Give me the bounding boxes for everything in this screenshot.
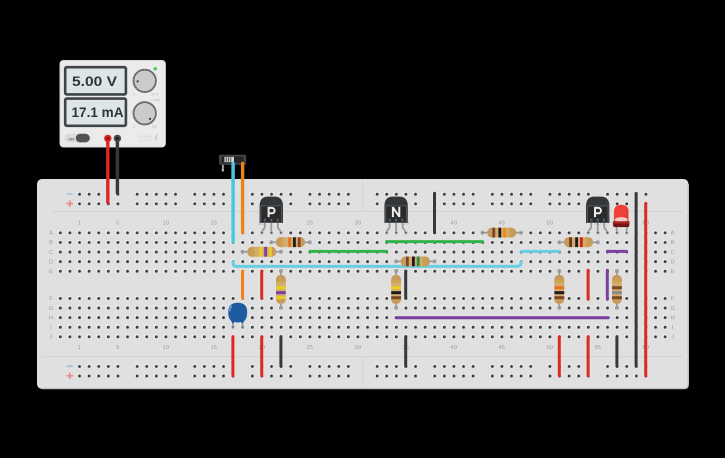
svg-text:1: 1 [78,345,81,351]
svg-text:A: A [671,231,675,237]
svg-text:30 V: 30 V [151,93,159,97]
svg-text:50: 50 [546,221,552,227]
svg-text:G: G [670,306,675,312]
svg-text:50: 50 [546,345,552,351]
svg-text:D: D [671,259,675,265]
svg-text:J: J [50,335,53,341]
svg-text:F: F [671,296,675,302]
svg-text:25: 25 [306,221,312,227]
svg-text:40: 40 [450,345,456,351]
svg-text:A: A [49,231,53,237]
svg-text:□ mA: □ mA [152,98,161,102]
svg-text:C: C [49,250,53,256]
svg-text:C: C [671,250,675,256]
svg-text:1: 1 [78,221,81,227]
svg-text:E: E [671,269,675,275]
svg-text:30: 30 [354,345,360,351]
svg-text:5 A: 5 A [152,125,158,129]
svg-text:5.00 V: 5.00 V [72,73,118,89]
svg-text:SUPPLY: SUPPLY [138,139,153,143]
svg-text:40: 40 [450,221,456,227]
svg-text:45: 45 [498,221,504,227]
svg-text:25: 25 [306,345,312,351]
svg-text:5: 5 [116,345,119,351]
svg-text:G: G [49,306,54,312]
svg-text:D: D [49,259,53,265]
svg-text:10: 10 [162,345,168,351]
svg-text:H: H [49,315,53,321]
svg-text:POWER: POWER [138,135,152,139]
svg-text:55: 55 [594,345,600,351]
svg-text:J: J [671,335,674,341]
svg-text:15: 15 [210,221,216,227]
svg-text:F: F [49,296,53,302]
svg-text:5: 5 [116,221,119,227]
svg-text:E: E [49,269,53,275]
svg-text:B: B [671,240,675,246]
svg-text:H: H [671,315,675,321]
svg-text:ON: ON [68,136,74,141]
svg-text:45: 45 [498,345,504,351]
svg-text:0: 0 [133,93,135,97]
svg-text:B: B [49,240,53,246]
svg-text:15: 15 [210,345,216,351]
svg-text:10: 10 [162,221,168,227]
svg-text:0: 0 [133,125,135,129]
svg-text:17.1 mA: 17.1 mA [72,104,124,120]
svg-text:30: 30 [354,221,360,227]
